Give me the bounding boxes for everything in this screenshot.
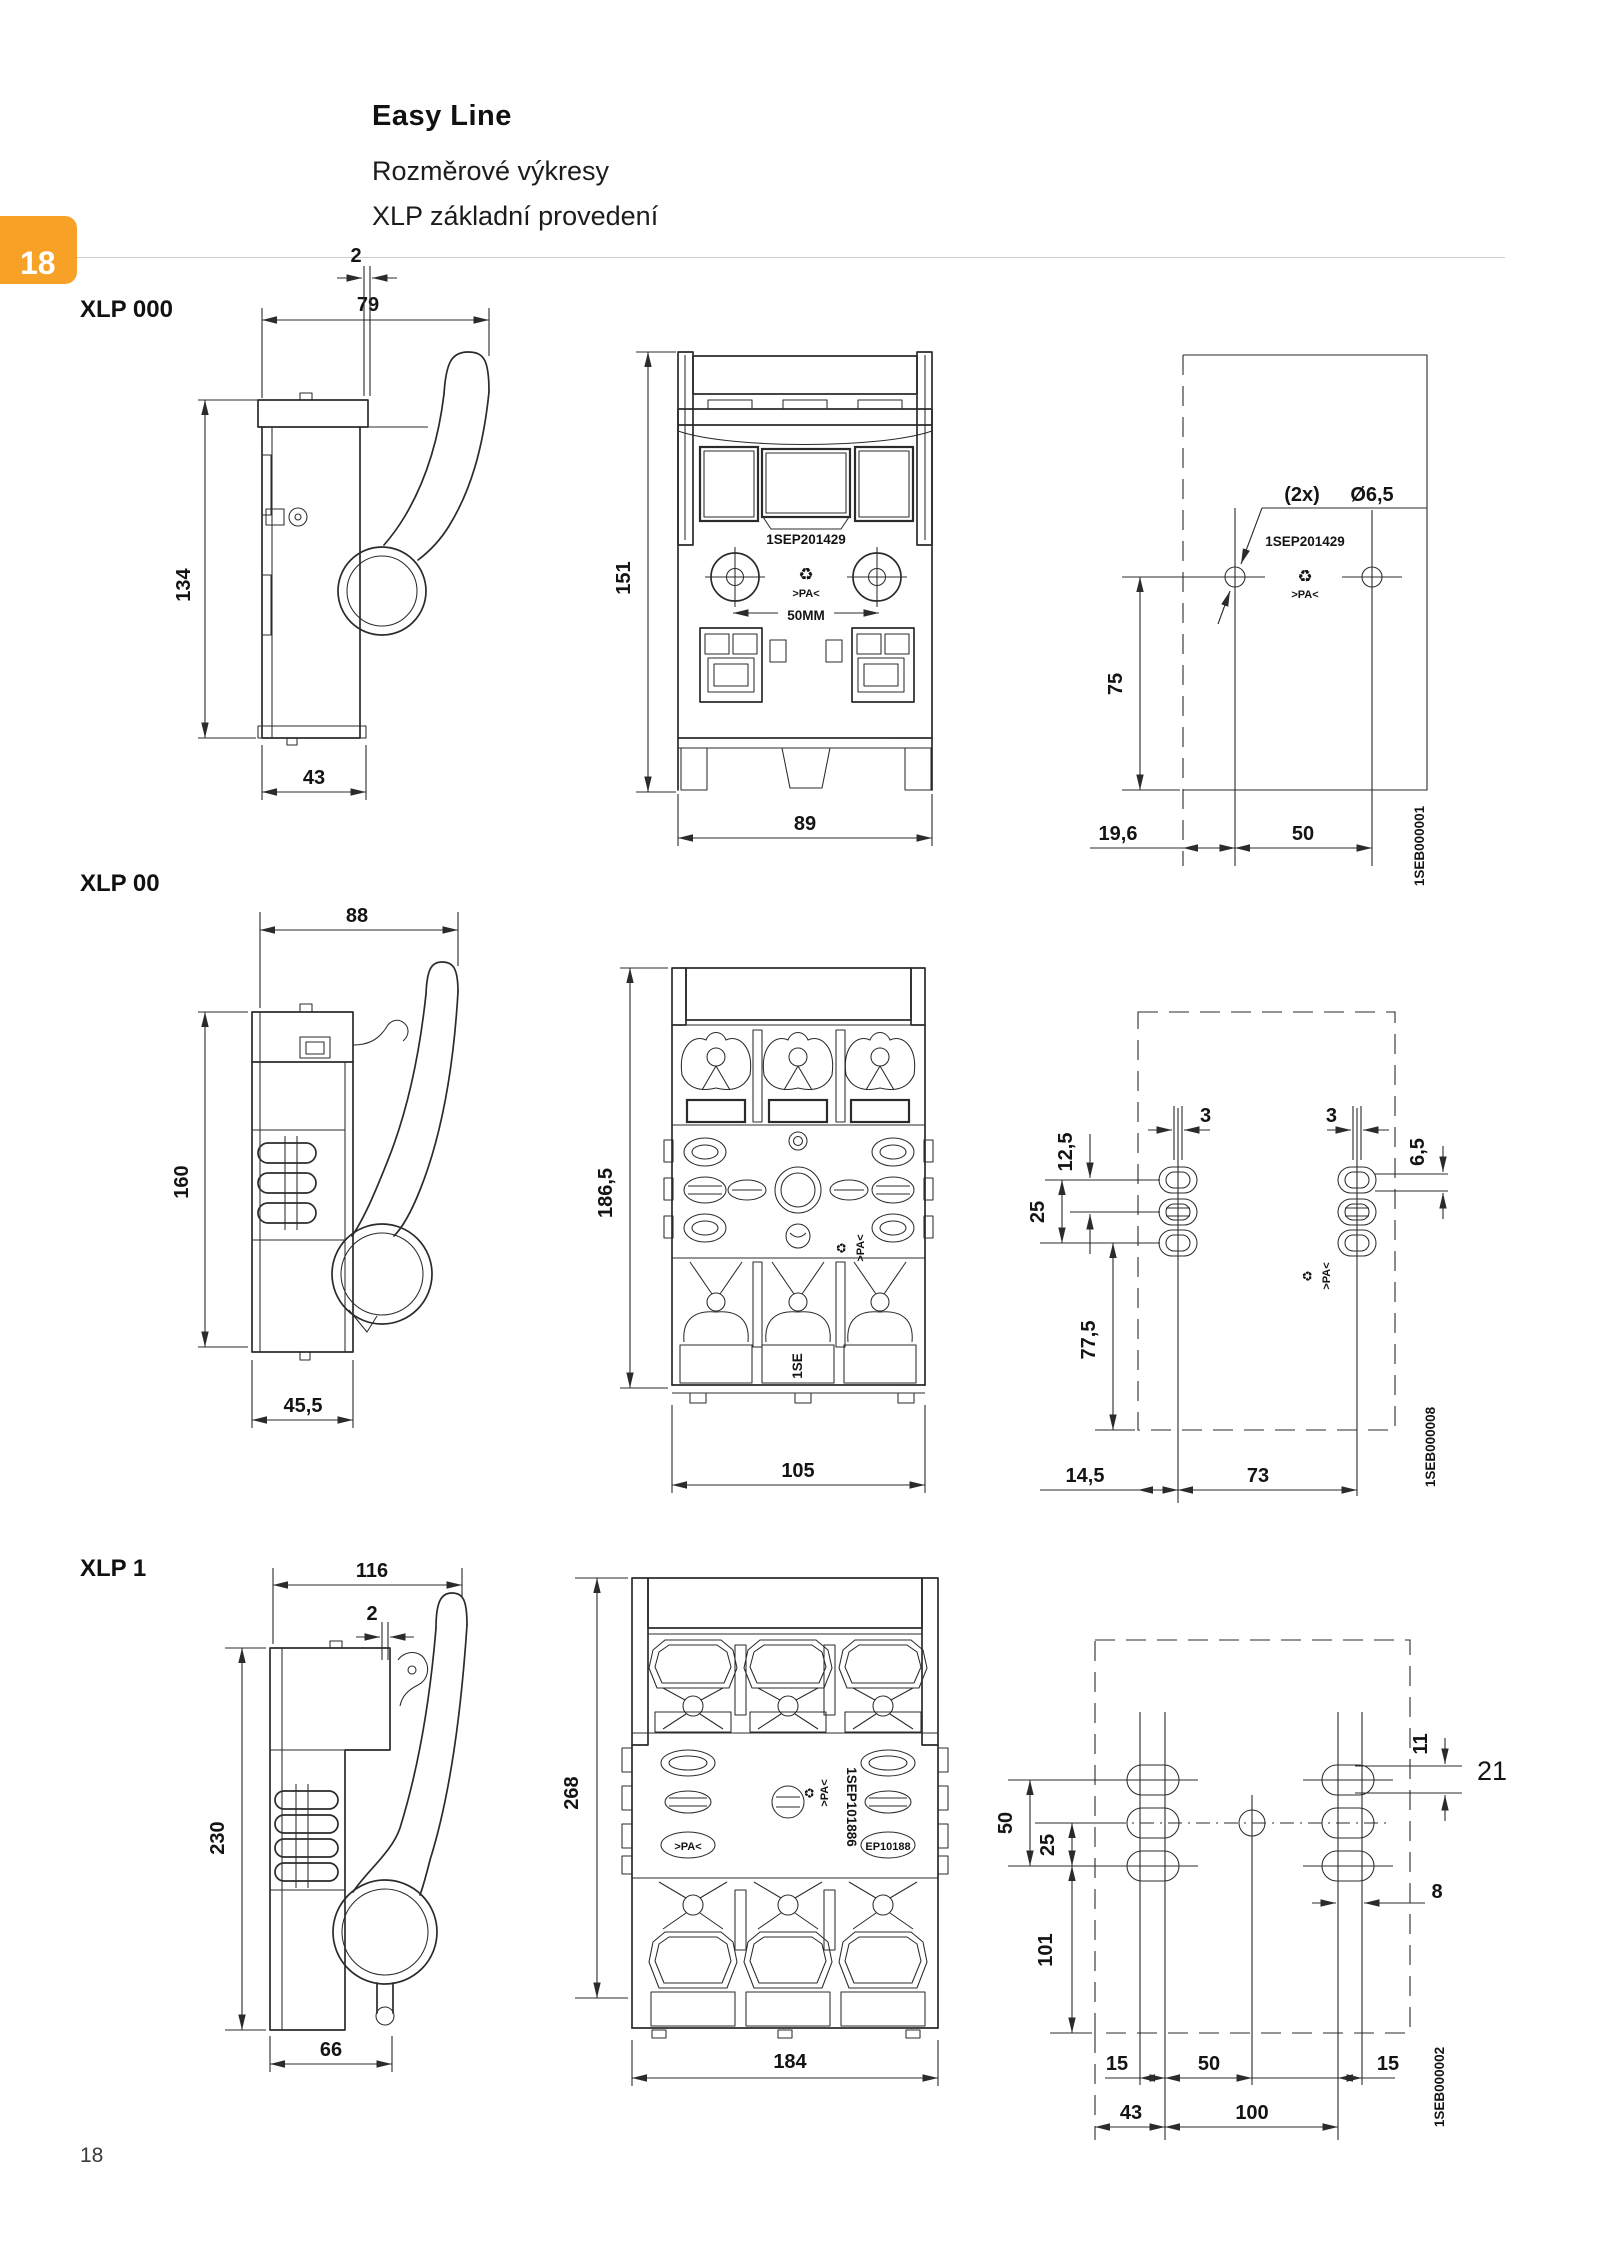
dim-label: 50	[1198, 2053, 1220, 2075]
dim-label: 6,5	[1407, 1138, 1429, 1166]
material-marking: >PA<	[792, 588, 819, 600]
hole-diameter: Ø6,5	[1350, 484, 1393, 506]
part-number: 1SEP201429	[1265, 534, 1345, 549]
xlp1-front-view: >PA< EP10188 ♻ >PA< 1SEP101886	[561, 1578, 948, 2086]
dim-label: 151	[613, 561, 635, 594]
drawing-number: 1SEB000008	[1423, 1406, 1438, 1487]
dim-label: 45,5	[284, 1395, 323, 1417]
drawing-number: 1SEB000001	[1412, 805, 1427, 886]
dim-label: 160	[171, 1165, 193, 1198]
dim-label: 77,5	[1078, 1321, 1100, 1360]
drawing-number: 1SEB000002	[1432, 2047, 1447, 2127]
dim-label: 105	[781, 1460, 814, 1482]
fuse-size-label: 50MM	[787, 608, 825, 623]
part-number: 1SEP201429	[766, 532, 846, 547]
xlp000-front-view: 1SEP201429 ♻ >PA< 50MM	[613, 352, 932, 846]
dim-label: 116	[356, 1560, 388, 1582]
dim-label: 11	[1410, 1733, 1432, 1754]
marking: 1SE	[790, 1353, 805, 1379]
dim-label: 15	[1106, 2053, 1128, 2075]
page-number: 18	[80, 2144, 103, 2168]
xlp00-front-view: ♻ >PA< 1SE 186,5	[595, 968, 933, 1493]
oval-marking: EP10188	[865, 1841, 910, 1853]
dim-label: 230	[207, 1821, 229, 1854]
dim-label: 2	[350, 245, 361, 267]
xlp000-side-view: 79 2	[173, 245, 489, 800]
dim-label: 66	[320, 2039, 342, 2061]
dim-label: 89	[794, 813, 816, 835]
dim-label: 100	[1235, 2102, 1268, 2124]
recycling-icon: ♻	[798, 565, 813, 585]
dim-label: 73	[1247, 1465, 1269, 1487]
recycling-icon: ♻	[835, 1242, 850, 1254]
dim-label: 184	[773, 2051, 807, 2073]
material-marking: >PA<	[819, 1779, 831, 1806]
xlp1-side-view: 116 2	[207, 1560, 467, 2072]
catalog-page: 18 Easy Line Rozměrové výkresy XLP zákla…	[0, 0, 1600, 2263]
dim-label: 268	[561, 1776, 583, 1809]
hole-count: (2x)	[1284, 484, 1320, 506]
recycling-icon: ♻	[803, 1787, 818, 1799]
dim-label: 25	[1037, 1834, 1059, 1856]
material-marking: >PA<	[1321, 1262, 1333, 1289]
dim-label: 50	[995, 1812, 1017, 1834]
dim-label: 88	[346, 905, 368, 927]
recycling-icon: ♻	[1301, 1270, 1316, 1282]
dim-label: 43	[1120, 2102, 1142, 2124]
dim-label: 79	[357, 294, 379, 316]
xlp000-drill-plan: (2x) Ø6,5 1SEP201429 ♻ >PA< 75 19,6 50 1…	[1090, 355, 1427, 886]
xlp00-side-view: 88 160	[171, 905, 458, 1428]
material-marking: >PA<	[1291, 589, 1318, 601]
dim-label: 15	[1377, 2053, 1399, 2075]
dim-label: 19,6	[1099, 823, 1138, 845]
dim-label: 75	[1105, 673, 1127, 695]
dim-label: 12,5	[1055, 1133, 1077, 1172]
dim-label: 8	[1431, 1881, 1442, 1903]
dim-label: 2	[366, 1603, 377, 1625]
dim-label: 134	[173, 567, 195, 601]
dim-label: 186,5	[595, 1168, 617, 1218]
dim-note: 21	[1477, 1756, 1507, 1786]
xlp00-drill-plan: 3 3 6,5 12,5 25 77,5	[1027, 1012, 1448, 1503]
dim-label: 101	[1035, 1933, 1057, 1966]
xlp1-drill-plan: 50 25 101 11 21 8 15 50 15	[995, 1640, 1507, 2140]
part-number: 1SEP101886	[844, 1767, 859, 1847]
dim-label: 3	[1326, 1105, 1337, 1127]
dim-label: 3	[1200, 1105, 1211, 1127]
dim-label: 43	[303, 767, 325, 789]
recycling-icon: ♻	[1297, 567, 1312, 587]
dim-label: 50	[1292, 823, 1314, 845]
dim-label: 25	[1027, 1201, 1049, 1223]
material-marking: >PA<	[674, 1841, 701, 1853]
dim-label: 14,5	[1066, 1465, 1105, 1487]
drawings-canvas: 79 2	[0, 0, 1600, 2263]
material-marking: >PA<	[855, 1234, 867, 1261]
